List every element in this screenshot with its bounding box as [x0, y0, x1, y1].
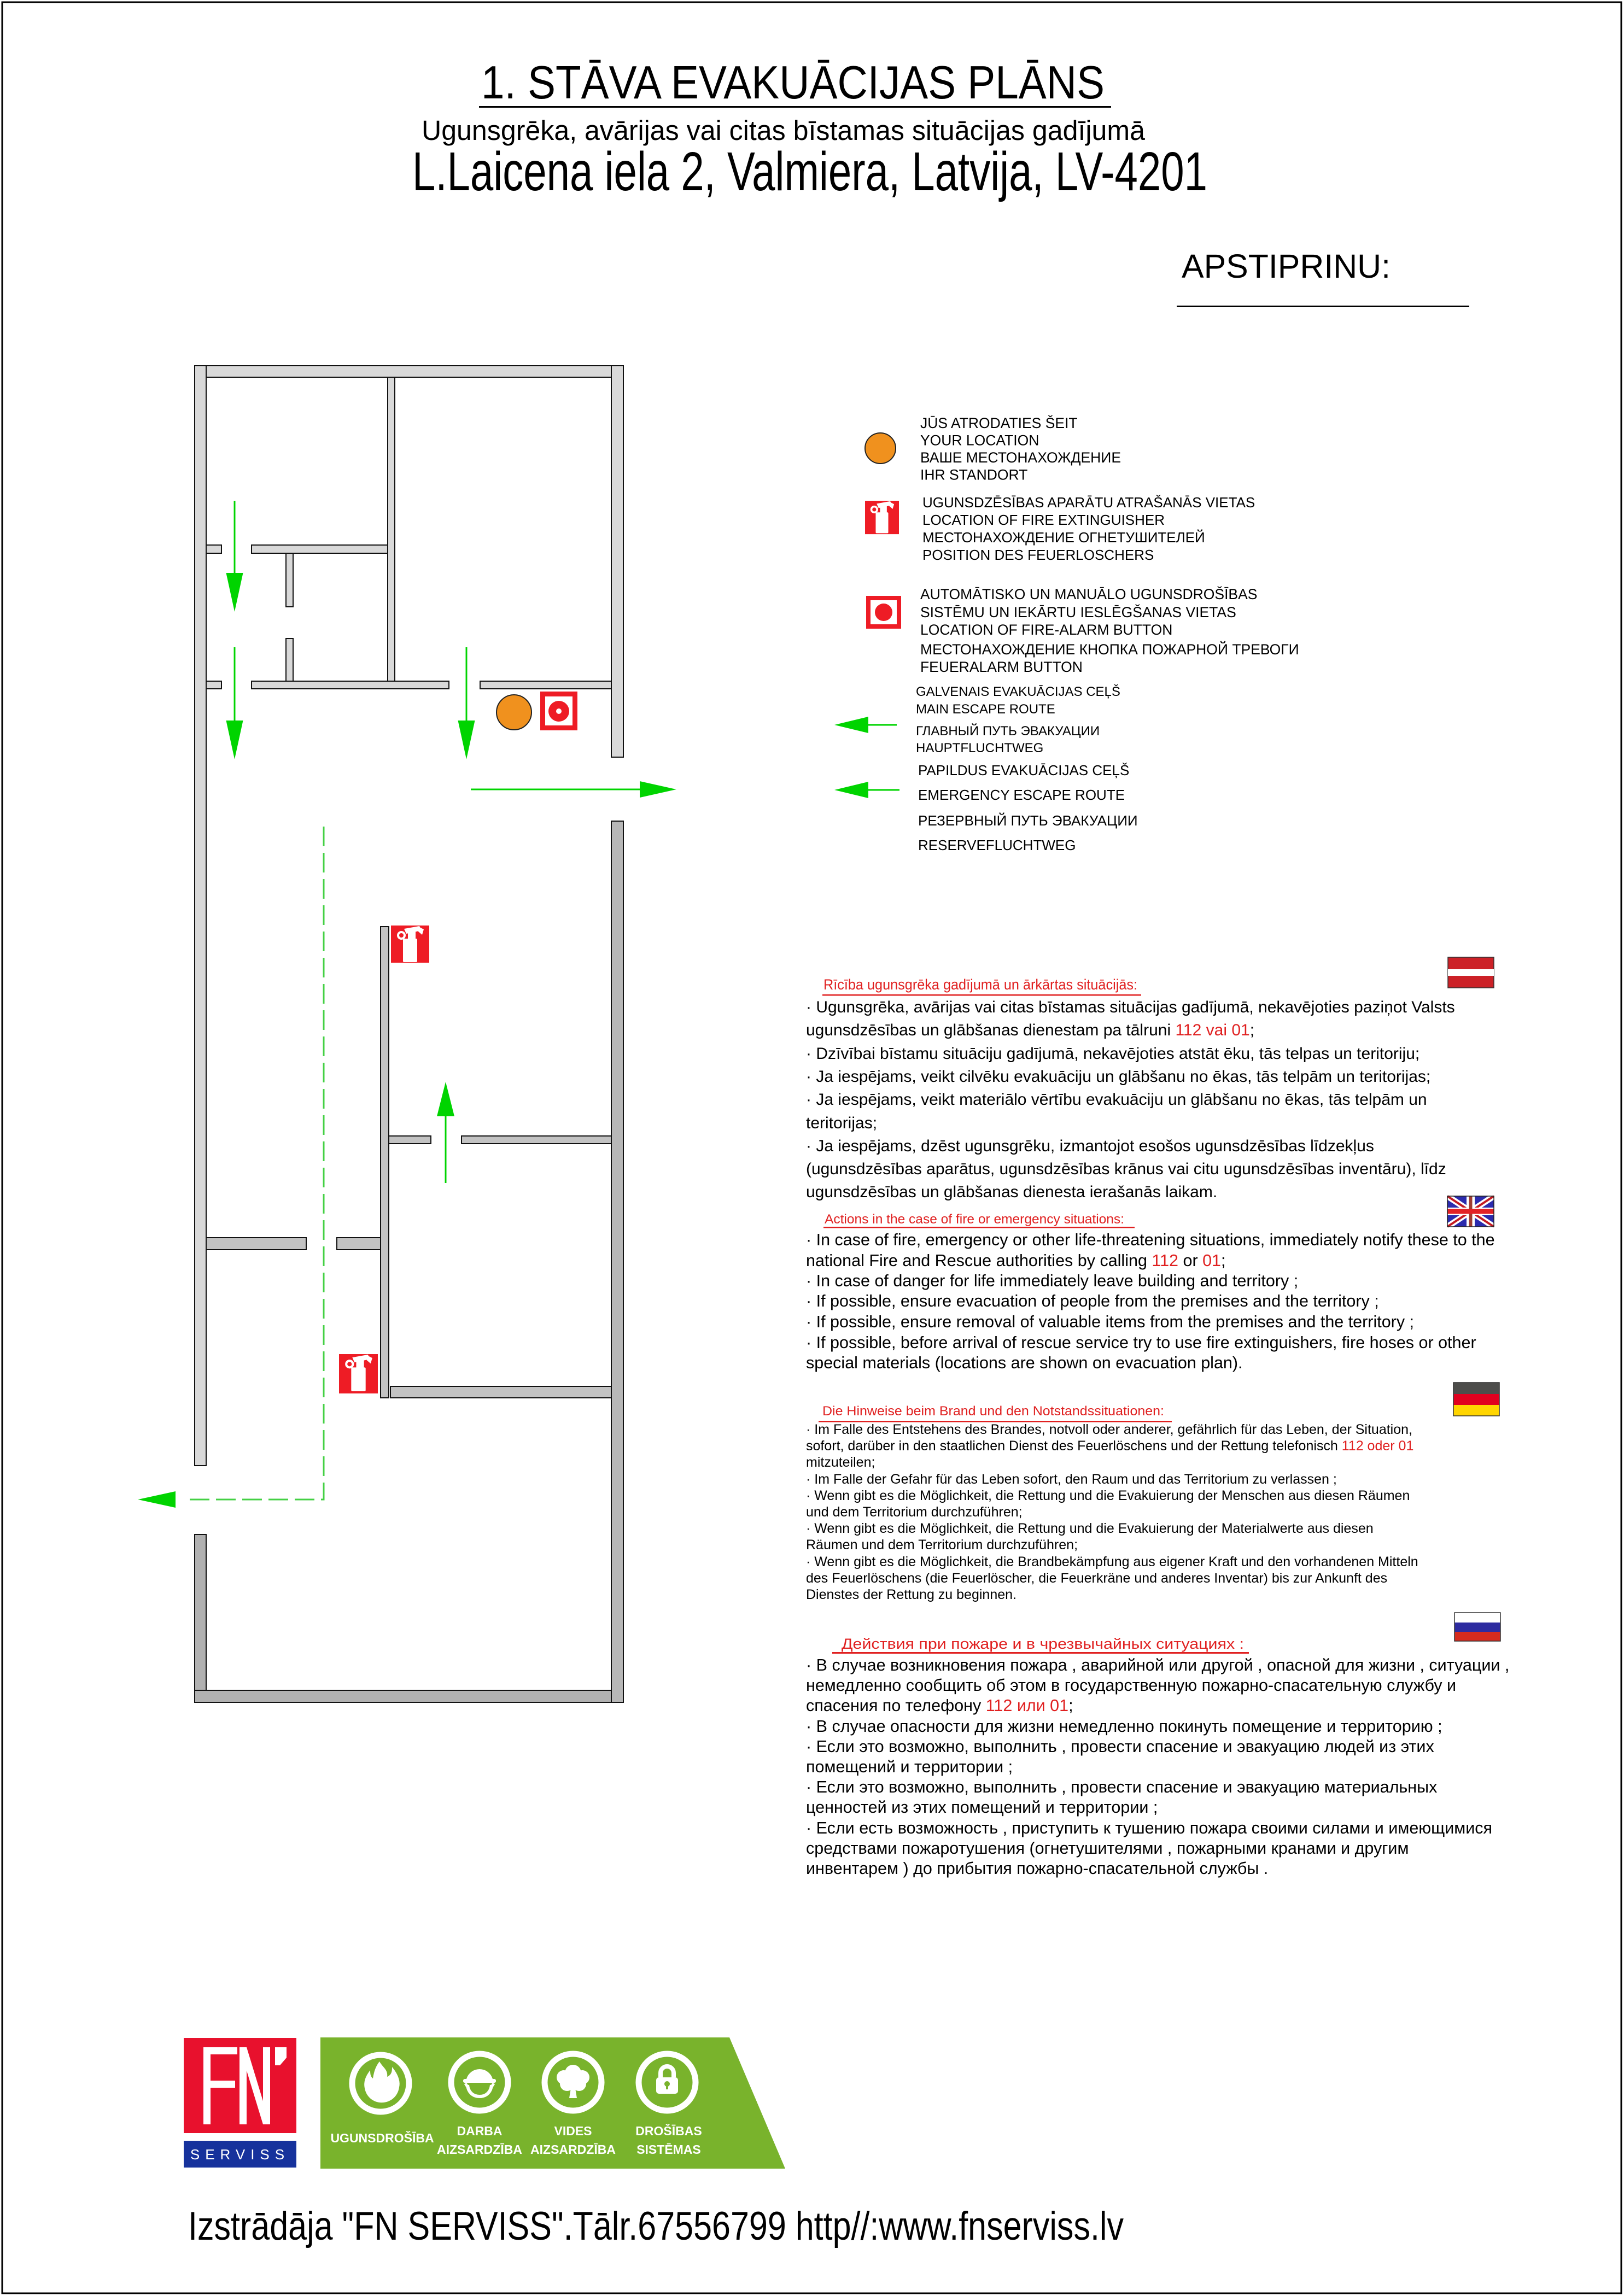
- svg-text:PAPILDUS EVAKUĀCIJAS CEĻŠ: PAPILDUS EVAKUĀCIJAS CEĻŠ: [918, 762, 1129, 778]
- svg-text:JŪS ATRODATIES ŠEIT: JŪS ATRODATIES ŠEIT: [920, 415, 1078, 431]
- svg-text:mitzuteilen;: mitzuteilen;: [806, 1455, 875, 1470]
- svg-text:1. STĀVA EVAKUĀCIJAS PLĀNS: 1. STĀVA EVAKUĀCIJAS PLĀNS: [481, 57, 1105, 109]
- svg-text:FEUERALARM BUTTON: FEUERALARM BUTTON: [920, 659, 1083, 675]
- svg-text:LOCATION OF FIRE-ALARM BUTTON: LOCATION OF FIRE-ALARM BUTTON: [920, 622, 1172, 638]
- svg-text:Die Hinweise beim Brand und de: Die Hinweise beim Brand und den Notstand…: [822, 1404, 1164, 1419]
- svg-text:und dem Territorium durchzufüh: und dem Territorium durchzuführen;: [806, 1504, 1023, 1520]
- svg-text:SISTĒMU UN IEKĀRTU IESLĒGŠANAS: SISTĒMU UN IEKĀRTU IESLĒGŠANAS VIETAS: [920, 604, 1236, 620]
- svg-text:· If possible, ensure removal: · If possible, ensure removal of valuabl…: [806, 1313, 1414, 1331]
- svg-text:· Im Falle des Entstehens des: · Im Falle des Entstehens des Brandes, n…: [806, 1422, 1412, 1437]
- svg-text:MAIN ESCAPE ROUTE: MAIN ESCAPE ROUTE: [916, 702, 1055, 717]
- svg-text:DARBA: DARBA: [457, 2124, 502, 2138]
- svg-text:RESERVEFLUCHTWEG: RESERVEFLUCHTWEG: [918, 837, 1076, 853]
- svg-text:инвентарем ) до прибытия пожар: инвентарем ) до прибытия пожарно-спасате…: [806, 1859, 1268, 1878]
- svg-text:AUTOMĀTISKO UN MANUĀLO UGUNSDR: AUTOMĀTISKO UN MANUĀLO UGUNSDROŠĪBAS: [920, 586, 1257, 602]
- svg-text:teritorijas;: teritorijas;: [806, 1114, 877, 1132]
- svg-text:special materials (locations a: special materials (locations are shown o…: [806, 1354, 1243, 1372]
- svg-text:L.Laicena iela 2, Valmiera, La: L.Laicena iela 2, Valmiera, Latvija, LV-…: [412, 141, 1207, 202]
- svg-text:· If possible, ensure evacuati: · If possible, ensure evacuation of peop…: [806, 1292, 1379, 1310]
- svg-text:Actions in the case of fire or: Actions in the case of fire or emergency…: [825, 1212, 1124, 1227]
- svg-text:(ugunsdzēsības aparātus, uguns: (ugunsdzēsības aparātus, ugunsdzēsības k…: [806, 1160, 1446, 1178]
- svg-text:ценностей из этих помещений и: ценностей из этих помещений и территории…: [806, 1798, 1158, 1817]
- svg-text:APSTIPRINU:: APSTIPRINU:: [1182, 248, 1391, 285]
- svg-text:спасения по телефону 112 или: спасения по телефону 112 или 01;: [806, 1696, 1073, 1715]
- svg-text:средствами пожаротушения (ог: средствами пожаротушения (огнетушителями…: [806, 1839, 1409, 1858]
- svg-text:· Ja iespējams, veikt cilvēku: · Ja iespējams, veikt cilvēku evakuāciju…: [806, 1068, 1430, 1086]
- svg-text:· Ugunsgrēka, avārijas vai cit: · Ugunsgrēka, avārijas vai citas bīstama…: [806, 998, 1455, 1016]
- svg-text:· Dzīvībai bīstamu situāciju g: · Dzīvībai bīstamu situāciju gadījumā, n…: [806, 1045, 1419, 1063]
- svg-text:VIDES: VIDES: [554, 2124, 592, 2138]
- svg-text:помещений и территории ;: помещений и территории ;: [806, 1758, 1013, 1776]
- svg-text:des Feuerlöschens (die Feuerlö: des Feuerlöschens (die Feuerlöscher, die…: [806, 1571, 1387, 1586]
- svg-text:· Если это возможно, выполнит: · Если это возможно, выполнить , провест…: [806, 1778, 1437, 1796]
- svg-text:· If possible, before arrival: · If possible, before arrival of rescue …: [806, 1333, 1476, 1352]
- svg-text:national Fire and Rescue autho: national Fire and Rescue authorities by …: [806, 1251, 1226, 1270]
- svg-text:ГЛАВНЫЙ ПУТЬ ЭВАКУАЦИИ: ГЛАВНЫЙ ПУТЬ ЭВАКУАЦИИ: [916, 723, 1100, 739]
- svg-text:GALVENAIS EVAKUĀCIJAS CEĻŠ: GALVENAIS EVAKUĀCIJAS CEĻŠ: [916, 684, 1120, 699]
- svg-text:Izstrādāja "FN SERVISS".Tālr.6: Izstrādāja "FN SERVISS".Tālr.67556799 ht…: [188, 2204, 1124, 2248]
- svg-text:· In case of fire, emergency o: · In case of fire, emergency or other li…: [806, 1231, 1495, 1249]
- svg-text:UGUNSDZĒSĪBAS APARĀTU ATRAŠANĀ: UGUNSDZĒSĪBAS APARĀTU ATRAŠANĀS VIETAS: [922, 494, 1255, 511]
- svg-text:МЕСТОНАХОЖДЕНИЕ КНОПКА ПОЖАРНО: МЕСТОНАХОЖДЕНИЕ КНОПКА ПОЖАРНОЙ ТРЕВОГИ: [920, 641, 1299, 658]
- svg-text:DROŠĪBAS: DROŠĪBAS: [635, 2123, 702, 2138]
- svg-text:SERVISS: SERVISS: [190, 2146, 290, 2163]
- svg-text:POSITION DES FEUERLOSCHERS: POSITION DES FEUERLOSCHERS: [922, 547, 1154, 563]
- svg-text:SISTĒMAS: SISTĒMAS: [636, 2142, 701, 2157]
- svg-text:UGUNSDROŠĪBA: UGUNSDROŠĪBA: [330, 2130, 434, 2145]
- svg-text:· Im Falle der Gefahr für das: · Im Falle der Gefahr für das Leben sofo…: [806, 1472, 1337, 1487]
- svg-text:HAUPTFLUCHTWEG: HAUPTFLUCHTWEG: [916, 741, 1043, 755]
- svg-text:· В случае опасности для жизни: · В случае опасности для жизни немедленн…: [806, 1717, 1442, 1736]
- svg-text:LOCATION OF FIRE EXTINGUISHER: LOCATION OF FIRE EXTINGUISHER: [922, 512, 1165, 528]
- svg-text:Действия при пожаре и в чрезвы: Действия при пожаре и в чрезвычайных сит…: [842, 1636, 1244, 1652]
- svg-text:EMERGENCY ESCAPE ROUTE: EMERGENCY ESCAPE ROUTE: [918, 787, 1125, 803]
- svg-text:· Wenn gibt es die Möglichkeit: · Wenn gibt es die Möglichkeit, die Rett…: [806, 1521, 1374, 1536]
- svg-text:sofort, darüber in den staatli: sofort, darüber in den staatlichen Diens…: [806, 1438, 1413, 1454]
- svg-text:· Если это возможно, выполнит: · Если это возможно, выполнить , провест…: [806, 1737, 1434, 1756]
- svg-text:AIZSARDZĪBA: AIZSARDZĪBA: [437, 2142, 522, 2157]
- svg-text:YOUR LOCATION: YOUR LOCATION: [920, 432, 1039, 449]
- svg-text:ugunsdzēsības un glābšanas die: ugunsdzēsības un glābšanas dienestam pa …: [806, 1021, 1254, 1039]
- svg-text:· In case of danger for life i: · In case of danger for life immediately…: [806, 1272, 1298, 1290]
- svg-text:ВАШЕ МЕСТОНАХОЖДЕНИЕ: ВАШЕ МЕСТОНАХОЖДЕНИЕ: [920, 449, 1121, 466]
- svg-text:IHR STANDORT: IHR STANDORT: [920, 467, 1027, 483]
- svg-text:· Wenn gibt es die Möglichkeit: · Wenn gibt es die Möglichkeit, die Rett…: [806, 1488, 1410, 1503]
- svg-text:РЕЗЕРВНЫЙ ПУТЬ ЭВАКУАЦИИ: РЕЗЕРВНЫЙ ПУТЬ ЭВАКУАЦИИ: [918, 812, 1138, 829]
- svg-text:AIZSARDZĪBA: AIZSARDZĪBA: [530, 2142, 616, 2157]
- svg-text:Rīcība ugunsgrēka gadījumā un: Rīcība ugunsgrēka gadījumā un ārkārtas s…: [823, 976, 1137, 993]
- svg-text:· Ja iespējams, dzēst ugunsgrē: · Ja iespējams, dzēst ugunsgrēku, izmant…: [806, 1137, 1374, 1155]
- svg-text:МЕСТОНАХОЖДЕНИЕ ОГНЕТУШИТЕЛЕЙ: МЕСТОНАХОЖДЕНИЕ ОГНЕТУШИТЕЛЕЙ: [922, 529, 1205, 546]
- svg-text:Dienstes der Rettung zu beginn: Dienstes der Rettung zu beginnen.: [806, 1587, 1017, 1602]
- svg-text:· Ja iespējams, veikt materiāl: · Ja iespējams, veikt materiālo vērtību …: [806, 1091, 1427, 1109]
- svg-text:· Если есть возможность , прис: · Если есть возможность , приступить к т…: [806, 1819, 1492, 1837]
- svg-text:· В случае возникновения пожар: · В случае возникновения пожара , аварий…: [806, 1656, 1509, 1674]
- svg-text:ugunsdzēsības un glābšanas die: ugunsdzēsības un glābšanas dienesta iera…: [806, 1183, 1217, 1201]
- svg-text:Räumen und dem Territorium dur: Räumen und dem Territorium durchzuführen…: [806, 1537, 1078, 1553]
- svg-text:· Wenn gibt es die Möglichkeit: · Wenn gibt es die Möglichkeit, die Bran…: [806, 1554, 1418, 1569]
- svg-text:немедленно сообщить об этом в: немедленно сообщить об этом в государств…: [806, 1676, 1456, 1695]
